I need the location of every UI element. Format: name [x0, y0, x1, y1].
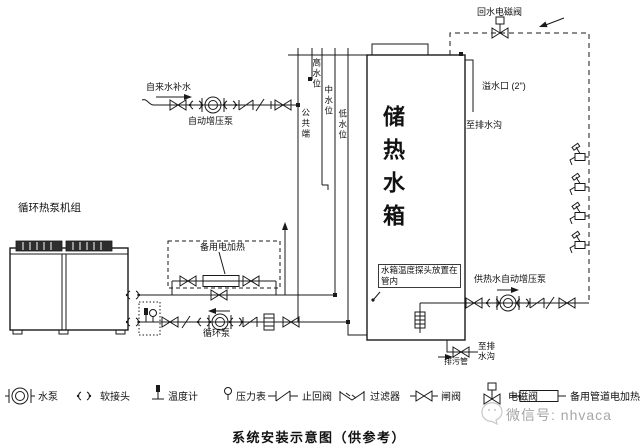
legend-pressure-gauge-icon	[225, 388, 232, 401]
thermometer-icon	[144, 308, 148, 322]
legend-symbols	[5, 383, 566, 404]
flow-arrow-icon	[511, 287, 519, 293]
high-level-label: 高水位	[311, 58, 321, 90]
flow-arrow-icon	[538, 21, 548, 29]
faucet-icon	[570, 173, 589, 195]
junction-dot	[296, 103, 300, 107]
legend-flexible-joint-icon	[77, 392, 91, 400]
spare-electric-heater-label: 备用电加热	[200, 242, 245, 252]
legend-label-spare-pipe-heater: 备用管道电加热	[570, 388, 640, 403]
taps	[570, 143, 589, 253]
legend-label-flexible-joint: 软接头	[100, 388, 130, 403]
legend-label-filter: 过滤器	[370, 388, 400, 403]
faucet-icon	[570, 202, 589, 224]
makeup-water-line	[142, 94, 296, 113]
legend-water-pump-icon	[9, 388, 31, 404]
legend-label-gate-valve: 闸阀	[441, 388, 461, 403]
common-terminal-label: 公共端	[300, 108, 310, 140]
to-drain-bottom-label: 至排 水沟	[478, 342, 495, 362]
hot-water-booster-pump-label: 供热水自动增压泵	[474, 274, 546, 284]
return-solenoid-valve-label: 回水电磁阀	[477, 7, 522, 17]
storage-tank-label: 储热水箱	[376, 105, 408, 237]
junction-dot	[346, 320, 350, 324]
probe-note: 水箱温度探头放置在 管内	[378, 264, 461, 288]
solenoid-valve-icon	[492, 17, 508, 38]
junction-dot	[459, 52, 463, 56]
legend-thermometer-icon	[156, 385, 160, 399]
hot-water-supply-line	[420, 287, 589, 311]
overflow-line	[465, 60, 473, 112]
heat-pump-unit-label: 循环热泵机组	[18, 202, 81, 214]
probe-note-line2: 管内	[381, 276, 458, 287]
flow-arrow-icon	[282, 222, 288, 230]
to-drain-bottom-line2: 水沟	[478, 352, 495, 362]
tap-water-makeup-label: 自来水补水	[146, 82, 191, 92]
mid-level-label: 中水位	[323, 85, 333, 117]
pipe-heater-icon	[264, 314, 274, 330]
heat-pump-unit	[10, 241, 140, 334]
pressure-gauge-icon	[150, 310, 157, 323]
overflow-port-label: 溢水口 (2")	[482, 81, 526, 91]
flow-arrow-icon	[208, 308, 216, 314]
faucet-icon	[570, 231, 589, 253]
legend-label-thermometer: 温度计	[168, 388, 198, 403]
wechat-id: 微信号: nhvaca	[506, 405, 612, 425]
blowdown-pipe-label: 排污管	[444, 357, 468, 366]
diagram-title: 系统安装示意图（供参考）	[232, 427, 406, 446]
legend-filter-icon	[340, 391, 364, 401]
legend-solenoid-valve-icon	[484, 383, 500, 404]
system-installation-diagram: 自来水补水 自动增压泵 回水电磁阀 溢水口 (2") 至排水沟 公共端 高水位 …	[0, 0, 640, 446]
faucet-icon	[570, 143, 589, 165]
legend-gate-valve-icon	[416, 391, 432, 401]
low-level-label: 低水位	[337, 109, 347, 141]
tank-manhole	[372, 44, 428, 55]
auto-booster-pump-label: 自动增压泵	[188, 116, 233, 126]
wechat-logo-icon	[482, 403, 502, 424]
legend-label-pressure-gauge: 压力表	[236, 388, 266, 403]
flow-arrow-icon	[184, 94, 192, 100]
circulation-pump-label: 循环泵	[203, 328, 230, 338]
to-drain-top-label: 至排水沟	[466, 120, 502, 130]
legend-label-check-valve: 止回阀	[302, 388, 332, 403]
legend-label-solenoid-valve: 电磁阀	[508, 388, 538, 403]
legend-check-valve-icon	[276, 391, 290, 401]
junction-dot	[333, 293, 337, 297]
legend-label-water-pump: 水泵	[38, 388, 58, 403]
probe-note-line1: 水箱温度探头放置在	[381, 265, 458, 276]
